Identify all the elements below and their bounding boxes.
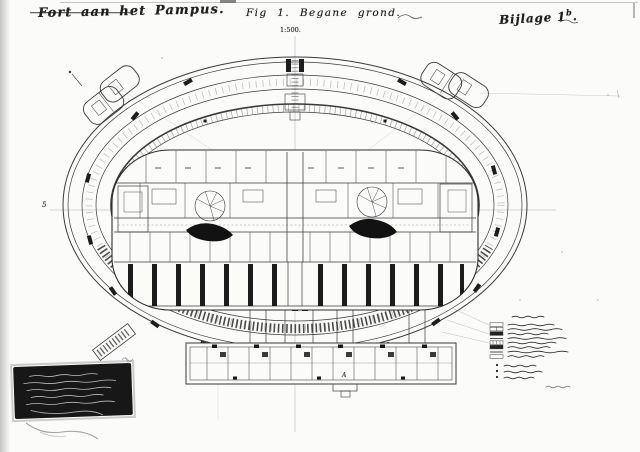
entrance-building — [186, 343, 456, 397]
scanned-drawing-sheet: Fort aan het Pampus. Fig 1. Begane grond… — [0, 0, 640, 452]
central-barracks-block — [112, 150, 478, 310]
bastion-flag-pin — [69, 71, 82, 86]
archive-stamp — [11, 361, 135, 421]
section-marker-left: 5 — [42, 201, 46, 209]
caption-flourish — [398, 15, 422, 19]
legend — [442, 308, 570, 388]
legend-footnotes — [496, 364, 570, 388]
figure-caption: Fig 1. Begane grond. — [246, 7, 401, 19]
annex-period: . — [572, 9, 578, 23]
scale-label: 1:500. — [280, 26, 301, 34]
legend-swatches — [490, 323, 503, 359]
legend-title-script — [512, 316, 544, 318]
section-marker-bottom: A — [342, 372, 346, 379]
bastion-top-right — [417, 54, 491, 118]
jetty-lower-left — [93, 324, 136, 361]
legend-label-scripts — [508, 324, 568, 357]
fort-plan-drawing — [0, 0, 640, 452]
